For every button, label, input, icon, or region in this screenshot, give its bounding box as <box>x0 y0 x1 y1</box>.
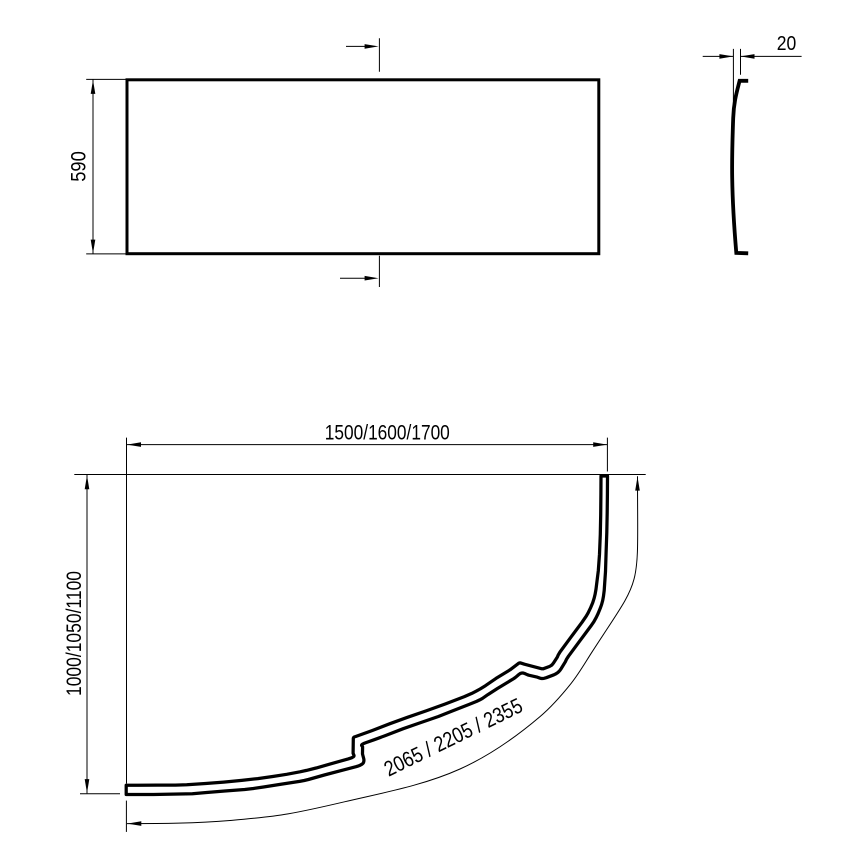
svg-text:590: 590 <box>67 151 91 182</box>
svg-text:1500/1600/1700: 1500/1600/1700 <box>325 420 450 444</box>
svg-text:20: 20 <box>777 32 797 55</box>
svg-text:1000/1050/1100: 1000/1050/1100 <box>62 571 86 696</box>
